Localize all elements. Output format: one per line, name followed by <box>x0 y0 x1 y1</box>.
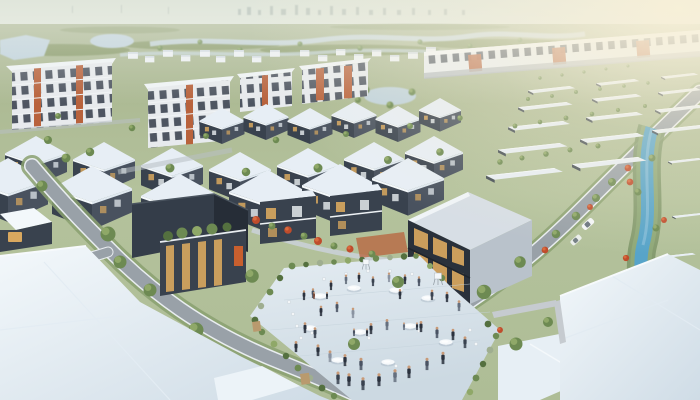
scene-svg <box>0 0 700 400</box>
sun-glow <box>0 0 700 400</box>
aerial-rendering <box>0 0 700 400</box>
